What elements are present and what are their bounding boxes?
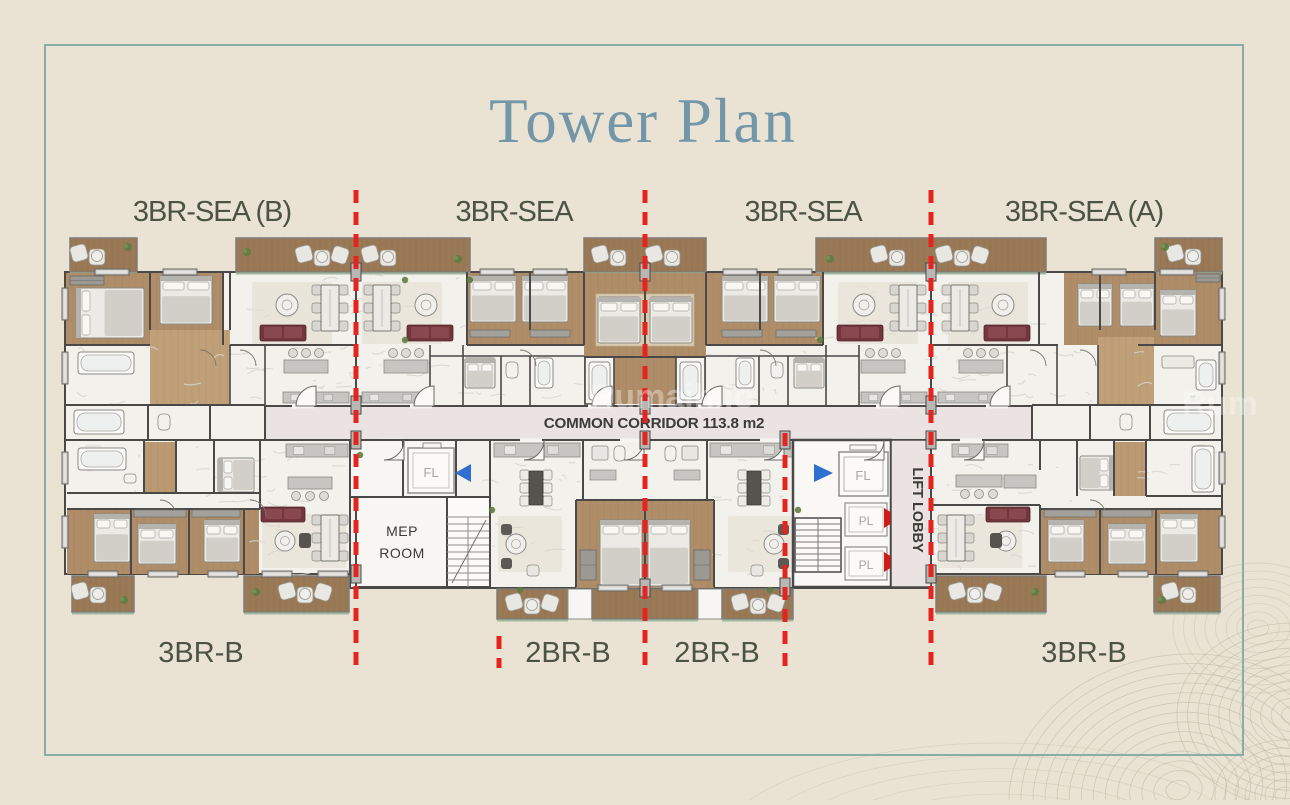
- svg-text:Tower Plan: Tower Plan: [489, 86, 797, 156]
- svg-text:FL: FL: [855, 468, 870, 483]
- svg-text:Rumaih.io: Rumaih.io: [590, 378, 754, 416]
- svg-text:Rum: Rum: [1182, 385, 1258, 423]
- svg-text:3BR-SEA: 3BR-SEA: [744, 196, 863, 228]
- svg-text:COMMON CORRIDOR 113.8 m2: COMMON CORRIDOR 113.8 m2: [544, 415, 765, 432]
- svg-text:MEP: MEP: [386, 523, 418, 539]
- svg-text:3BR-B: 3BR-B: [158, 637, 243, 669]
- svg-text:ROOM: ROOM: [379, 545, 425, 561]
- svg-text:3BR-SEA (B): 3BR-SEA (B): [133, 196, 291, 228]
- svg-text:2BR-B: 2BR-B: [674, 637, 759, 669]
- svg-text:3BR-SEA (A): 3BR-SEA (A): [1005, 196, 1163, 228]
- svg-text:PL: PL: [859, 514, 874, 528]
- svg-text:3BR-B: 3BR-B: [1041, 637, 1126, 669]
- svg-text:FL: FL: [423, 465, 438, 480]
- svg-text:LIFT LOBBY: LIFT LOBBY: [909, 467, 925, 553]
- svg-text:PL: PL: [859, 558, 874, 572]
- svg-text:2BR-B: 2BR-B: [525, 637, 610, 669]
- svg-text:3BR-SEA: 3BR-SEA: [455, 196, 574, 228]
